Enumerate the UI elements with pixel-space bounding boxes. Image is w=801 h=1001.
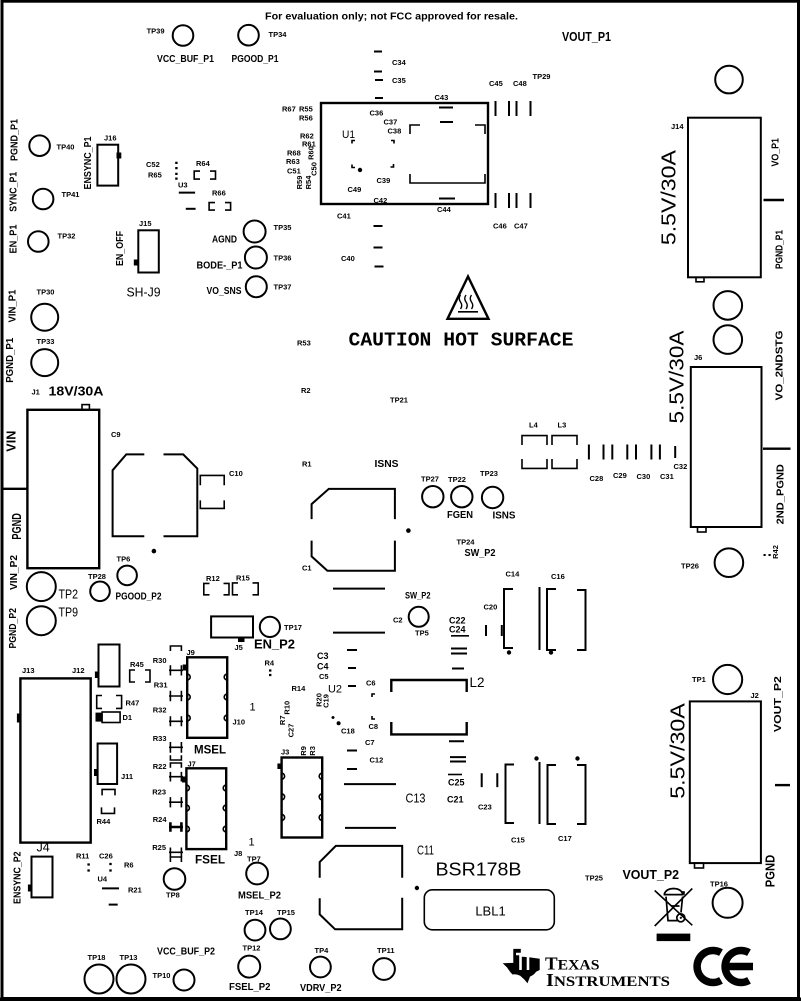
svg-text:U4: U4 <box>98 875 108 884</box>
svg-text:TP15: TP15 <box>277 908 295 917</box>
svg-text:R12: R12 <box>206 574 220 583</box>
svg-text:VOUT_P2: VOUT_P2 <box>623 868 680 882</box>
svg-text:PGND_P1: PGND_P1 <box>9 119 21 161</box>
svg-text:VOUT_P2: VOUT_P2 <box>772 676 784 732</box>
svg-text:R47: R47 <box>126 699 140 708</box>
svg-text:TP23: TP23 <box>480 469 498 478</box>
svg-text:TP24: TP24 <box>457 538 476 547</box>
svg-text:J13: J13 <box>22 666 35 675</box>
svg-text:C35: C35 <box>392 76 406 85</box>
svg-text:TP41: TP41 <box>62 190 80 199</box>
svg-text:C32: C32 <box>674 462 688 471</box>
svg-text:EN_OFF: EN_OFF <box>114 231 126 266</box>
svg-text:R56: R56 <box>299 114 313 123</box>
svg-text:C36: C36 <box>370 109 384 118</box>
svg-text:FSEL_P2: FSEL_P2 <box>229 981 271 993</box>
svg-text:C47: C47 <box>514 222 528 231</box>
svg-text:C5: C5 <box>319 672 329 681</box>
svg-text:R45: R45 <box>130 660 144 669</box>
svg-text:BSR178B: BSR178B <box>436 860 522 880</box>
svg-text:U1: U1 <box>342 129 355 141</box>
svg-text:TP2: TP2 <box>59 587 79 602</box>
svg-text:SYNC_P1: SYNC_P1 <box>8 172 20 212</box>
svg-text:U2: U2 <box>328 684 342 696</box>
svg-text:VDRV_P2: VDRV_P2 <box>300 982 342 994</box>
svg-text:SW_P2: SW_P2 <box>405 591 431 601</box>
svg-text:C42: C42 <box>374 196 388 205</box>
svg-text:R31: R31 <box>154 681 168 690</box>
svg-text:R53: R53 <box>297 339 311 348</box>
svg-text:C50: C50 <box>310 162 319 176</box>
svg-text:J12: J12 <box>72 666 85 675</box>
svg-text:R6: R6 <box>124 861 134 870</box>
svg-text:C11: C11 <box>417 844 434 858</box>
svg-text:R23: R23 <box>152 788 166 797</box>
svg-text:J9: J9 <box>187 648 195 657</box>
svg-text:C7: C7 <box>365 738 375 747</box>
svg-text:C30: C30 <box>637 472 651 481</box>
svg-text:R10: R10 <box>283 701 292 715</box>
svg-text:C51: C51 <box>287 167 301 176</box>
svg-text:PGND_P1: PGND_P1 <box>774 230 786 269</box>
svg-text:C26: C26 <box>99 852 113 861</box>
svg-text:PGND_P2: PGND_P2 <box>7 608 19 649</box>
svg-text:R44: R44 <box>97 817 112 826</box>
svg-text:1: 1 <box>249 837 255 849</box>
svg-text:C15: C15 <box>511 836 525 845</box>
svg-text:VIN_P1: VIN_P1 <box>6 289 18 322</box>
svg-text:R2: R2 <box>301 386 311 395</box>
svg-text:ENSYNC_P2: ENSYNC_P2 <box>11 851 23 904</box>
svg-text:C19: C19 <box>322 694 331 708</box>
svg-text:TP25: TP25 <box>585 874 603 883</box>
svg-text:18V/30A: 18V/30A <box>49 384 105 399</box>
svg-text:LBL1: LBL1 <box>475 904 505 919</box>
svg-text:R55: R55 <box>299 105 313 114</box>
svg-text:TP6: TP6 <box>117 555 131 564</box>
svg-text:VCC_BUF_P2: VCC_BUF_P2 <box>157 946 215 958</box>
svg-text:J16: J16 <box>104 134 117 143</box>
svg-text:C38: C38 <box>388 127 402 136</box>
svg-text:R64: R64 <box>196 159 211 168</box>
svg-text:PGND: PGND <box>764 855 778 888</box>
svg-text:TP13: TP13 <box>120 953 138 962</box>
svg-text:TP11: TP11 <box>377 946 395 955</box>
svg-text:FSEL: FSEL <box>195 855 225 867</box>
svg-text:C13: C13 <box>406 791 426 806</box>
svg-text:TP26: TP26 <box>681 562 699 571</box>
svg-text:2ND_PGND: 2ND_PGND <box>775 464 787 525</box>
svg-text:C31: C31 <box>660 472 674 481</box>
svg-text:C39: C39 <box>377 176 391 185</box>
svg-text:PGOOD_P1: PGOOD_P1 <box>232 53 279 65</box>
svg-text:BODE-_P1: BODE-_P1 <box>197 260 243 272</box>
svg-text:EN_P1: EN_P1 <box>8 224 20 253</box>
svg-text:TP35: TP35 <box>274 223 292 232</box>
svg-text:C49: C49 <box>348 185 362 194</box>
svg-text:TP9: TP9 <box>59 605 79 620</box>
svg-text:CAUTION HOT SURFACE: CAUTION HOT SURFACE <box>349 330 574 352</box>
svg-text:L2: L2 <box>470 674 485 690</box>
svg-text:TP10: TP10 <box>153 971 171 980</box>
svg-text:J1: J1 <box>32 388 40 397</box>
svg-text:C27: C27 <box>287 724 296 738</box>
svg-text:TP28: TP28 <box>88 572 106 581</box>
svg-text:MSEL: MSEL <box>194 745 226 757</box>
svg-text:R30: R30 <box>153 656 167 665</box>
svg-text:TP27: TP27 <box>421 475 439 484</box>
svg-text:5.5V/30A: 5.5V/30A <box>659 149 681 245</box>
svg-text:5.5V/30A: 5.5V/30A <box>667 330 689 424</box>
svg-text:C3: C3 <box>317 651 329 661</box>
svg-text:TP18: TP18 <box>88 953 106 962</box>
svg-text:J3: J3 <box>281 748 289 757</box>
svg-text:C10: C10 <box>229 469 243 478</box>
svg-text:PGOOD_P2: PGOOD_P2 <box>116 591 162 603</box>
svg-text:J4: J4 <box>37 841 50 855</box>
svg-text:ISNS: ISNS <box>375 458 399 470</box>
svg-text:R9: R9 <box>299 746 308 756</box>
svg-text:AGND: AGND <box>212 234 237 246</box>
svg-text:TP40: TP40 <box>57 143 75 152</box>
svg-text:J6: J6 <box>694 353 702 362</box>
svg-text:R11: R11 <box>76 852 89 861</box>
svg-text:C2: C2 <box>393 616 403 625</box>
svg-text:R66: R66 <box>212 189 226 198</box>
svg-text:C45: C45 <box>489 79 503 88</box>
svg-text:R54: R54 <box>304 175 313 190</box>
svg-text:5.5V/30A: 5.5V/30A <box>668 702 690 798</box>
svg-text:R24: R24 <box>153 815 168 824</box>
svg-text:TP30: TP30 <box>37 288 55 297</box>
svg-text:C1: C1 <box>302 564 312 573</box>
svg-text:VIN_P2: VIN_P2 <box>8 555 20 590</box>
svg-text:C20: C20 <box>484 603 498 612</box>
svg-text:J15: J15 <box>139 219 152 228</box>
svg-text:C43: C43 <box>435 93 449 102</box>
svg-text:C52: C52 <box>146 160 160 169</box>
svg-text:TP33: TP33 <box>37 337 55 346</box>
svg-text:R1: R1 <box>302 460 312 469</box>
svg-text:C4: C4 <box>317 662 329 672</box>
svg-text:C41: C41 <box>337 212 351 221</box>
svg-text:TP17: TP17 <box>284 623 302 632</box>
svg-text:J10: J10 <box>233 718 246 727</box>
svg-text:SH-J9: SH-J9 <box>127 286 161 300</box>
svg-text:C25: C25 <box>448 778 465 788</box>
svg-text:R33: R33 <box>153 734 167 743</box>
svg-text:R22: R22 <box>153 762 167 771</box>
svg-text:ISNS: ISNS <box>493 510 516 522</box>
svg-text:C46: C46 <box>493 222 507 231</box>
svg-text:TP5: TP5 <box>415 629 429 638</box>
svg-text:TP12: TP12 <box>243 944 261 953</box>
svg-text:J14: J14 <box>671 122 684 131</box>
svg-text:R42: R42 <box>771 545 780 559</box>
svg-text:J8: J8 <box>234 849 242 858</box>
svg-text:VCC_BUF_P1: VCC_BUF_P1 <box>157 53 214 65</box>
svg-text:C17: C17 <box>558 834 572 843</box>
svg-text:R32: R32 <box>153 706 167 715</box>
svg-text:C16: C16 <box>551 572 565 581</box>
svg-text:C37: C37 <box>384 118 398 127</box>
svg-text:VIN: VIN <box>4 431 18 452</box>
svg-text:TP1: TP1 <box>692 675 706 684</box>
svg-text:R63: R63 <box>286 157 300 166</box>
svg-text:R59: R59 <box>295 176 304 190</box>
svg-text:C23: C23 <box>478 803 492 812</box>
svg-text:TP22: TP22 <box>448 475 466 484</box>
svg-text:TP8: TP8 <box>166 891 180 900</box>
svg-text:R25: R25 <box>152 843 166 852</box>
svg-text:C24: C24 <box>449 625 466 635</box>
svg-text:R67: R67 <box>282 105 296 114</box>
svg-text:L3: L3 <box>558 421 567 430</box>
svg-text:J11: J11 <box>121 772 133 781</box>
svg-text:L4: L4 <box>529 421 539 430</box>
svg-text:SW_P2: SW_P2 <box>465 547 496 559</box>
svg-text:C21: C21 <box>447 795 464 805</box>
svg-text:TP37: TP37 <box>274 283 292 292</box>
svg-text:TP36: TP36 <box>274 254 292 263</box>
svg-text:TP4: TP4 <box>315 946 330 955</box>
svg-text:C18: C18 <box>341 727 355 736</box>
svg-text:TP21: TP21 <box>390 396 408 405</box>
svg-text:R60: R60 <box>307 146 316 160</box>
svg-text:MSEL_P2: MSEL_P2 <box>238 890 281 902</box>
svg-text:J5: J5 <box>235 643 243 652</box>
svg-text:J2: J2 <box>751 691 759 700</box>
svg-text:R21: R21 <box>128 886 142 895</box>
svg-text:U3: U3 <box>178 181 188 190</box>
svg-text:TP32: TP32 <box>58 232 76 241</box>
svg-text:C28: C28 <box>590 474 604 483</box>
svg-text:VO_SNS: VO_SNS <box>207 285 242 297</box>
svg-text:C40: C40 <box>341 254 355 263</box>
svg-text:D1: D1 <box>123 713 133 722</box>
svg-text:TP39: TP39 <box>147 27 165 36</box>
svg-text:R3: R3 <box>308 746 317 756</box>
svg-text:C12: C12 <box>370 756 384 765</box>
svg-text:VO_P1: VO_P1 <box>770 138 782 167</box>
svg-text:TP14: TP14 <box>245 908 264 917</box>
svg-text:C9: C9 <box>111 430 121 439</box>
svg-text:C34: C34 <box>392 58 407 67</box>
svg-text:PGND: PGND <box>10 513 24 540</box>
svg-text:C8: C8 <box>369 722 379 731</box>
svg-text:R4: R4 <box>265 659 275 668</box>
svg-text:R14: R14 <box>292 684 307 693</box>
svg-text:TP29: TP29 <box>533 72 551 81</box>
svg-text:R15: R15 <box>236 574 250 583</box>
svg-text:VO_2NDSTG: VO_2NDSTG <box>774 331 786 401</box>
svg-text:C14: C14 <box>506 570 521 579</box>
svg-text:C44: C44 <box>437 205 452 214</box>
svg-text:1: 1 <box>250 702 256 714</box>
svg-text:TP34: TP34 <box>269 30 288 39</box>
svg-text:PGND_P1: PGND_P1 <box>4 338 16 383</box>
svg-text:C6: C6 <box>366 679 376 688</box>
svg-text:For evaluation only; not FCC a: For evaluation only; not FCC approved fo… <box>265 11 518 23</box>
svg-text:C48: C48 <box>513 79 527 88</box>
svg-text:C29: C29 <box>613 471 627 480</box>
svg-text:EN_P2: EN_P2 <box>254 638 295 652</box>
svg-text:R65: R65 <box>148 171 162 180</box>
svg-text:VOUT_P1: VOUT_P1 <box>562 30 611 44</box>
svg-text:ENSYNC_P1: ENSYNC_P1 <box>82 136 94 189</box>
svg-text:FGEN: FGEN <box>447 509 473 521</box>
